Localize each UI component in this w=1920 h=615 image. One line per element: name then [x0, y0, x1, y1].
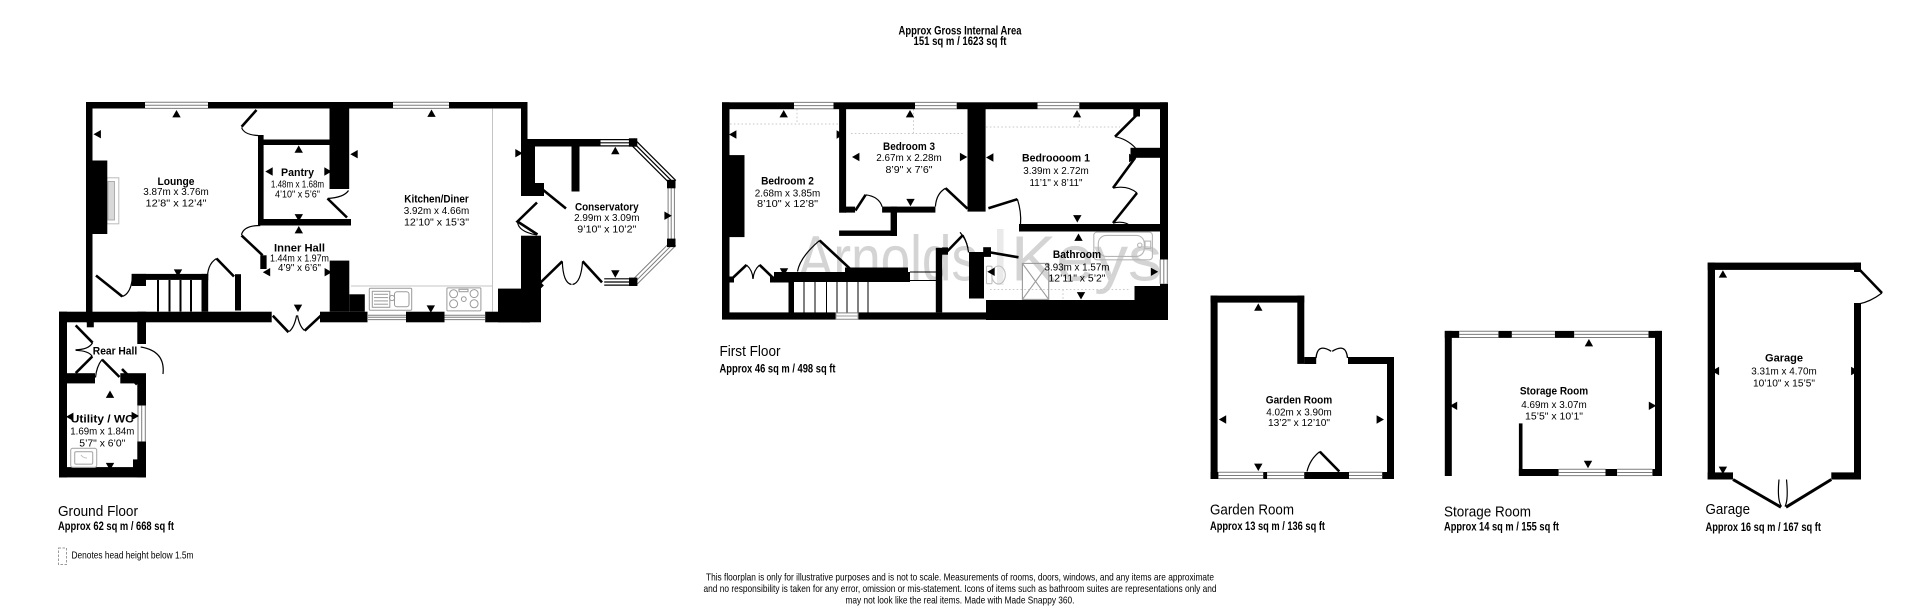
svg-text:10’10" x 15’5": 10’10" x 15’5" [1753, 379, 1815, 390]
svg-text:and no responsibility is taken: and no responsibility is taken for any e… [704, 583, 1217, 595]
svg-text:5’7" x 6’0": 5’7" x 6’0" [79, 439, 125, 450]
svg-text:12’10" x 15’3": 12’10" x 15’3" [404, 218, 469, 229]
svg-text:Denotes head height below 1.5m: Denotes head height below 1.5m [72, 550, 194, 562]
svg-text:may not look like the real ite: may not look like the real items. Made w… [846, 595, 1075, 607]
svg-text:1.69m x 1.84m: 1.69m x 1.84m [70, 427, 134, 438]
svg-text:8’10" x 12’8": 8’10" x 12’8" [757, 199, 818, 210]
svg-text:3.93m x 1.57m: 3.93m x 1.57m [1045, 262, 1110, 273]
svg-text:4.69m x 3.07m: 4.69m x 3.07m [1521, 400, 1586, 411]
svg-text:Bathroom: Bathroom [1053, 249, 1101, 261]
svg-text:Approx 16 sq m / 167 sq ft: Approx 16 sq m / 167 sq ft [1706, 522, 1822, 534]
svg-text:Approx 46 sq m / 498 sq ft: Approx 46 sq m / 498 sq ft [720, 364, 836, 376]
svg-text:Kitchen/Diner: Kitchen/Diner [404, 194, 469, 206]
svg-text:3.39m x 2.72m: 3.39m x 2.72m [1023, 166, 1088, 177]
svg-text:9’10" x 10’2": 9’10" x 10’2" [577, 225, 636, 236]
svg-text:151 sq m / 1623 sq ft: 151 sq m / 1623 sq ft [914, 36, 1007, 48]
svg-text:Lounge: Lounge [158, 176, 195, 188]
svg-text:11’1" x 8’11": 11’1" x 8’11" [1030, 178, 1083, 189]
svg-text:Conservatory: Conservatory [575, 201, 639, 213]
svg-text:This floorplan is only for ill: This floorplan is only for illustrative … [706, 572, 1214, 584]
svg-text:Storage Room: Storage Room [1520, 386, 1588, 398]
svg-text:2.67m x 2.28m: 2.67m x 2.28m [876, 153, 941, 164]
svg-text:Bedroom 3: Bedroom 3 [883, 141, 935, 153]
svg-text:12’11" x 5’2": 12’11" x 5’2" [1049, 273, 1106, 284]
svg-text:12’8" x 12’4": 12’8" x 12’4" [146, 199, 207, 210]
svg-text:4.02m x 3.90m: 4.02m x 3.90m [1266, 407, 1331, 418]
svg-text:2.99m x 3.09m: 2.99m x 3.09m [574, 213, 639, 224]
svg-text:Garden Room: Garden Room [1210, 502, 1294, 519]
svg-text:4’9" x 6’6": 4’9" x 6’6" [278, 263, 321, 274]
svg-text:Storage Room: Storage Room [1444, 504, 1531, 521]
svg-text:First Floor: First Floor [720, 343, 781, 360]
svg-text:Approx 14 sq m / 155 sq ft: Approx 14 sq m / 155 sq ft [1444, 522, 1559, 534]
svg-text:Rear Hall: Rear Hall [93, 345, 137, 357]
svg-text:3.31m x 4.70m: 3.31m x 4.70m [1751, 366, 1816, 377]
svg-text:Approx 62 sq m / 668 sq ft: Approx 62 sq m / 668 sq ft [58, 521, 174, 533]
svg-text:3.87m x 3.76m: 3.87m x 3.76m [143, 187, 208, 198]
svg-text:Ground Floor: Ground Floor [58, 503, 138, 520]
svg-text:Pantry: Pantry [281, 167, 315, 179]
svg-text:2.68m x 3.85m: 2.68m x 3.85m [755, 188, 820, 199]
svg-text:15’5" x 10’1": 15’5" x 10’1" [1525, 412, 1583, 423]
svg-text:Approx 13 sq m / 136 sq ft: Approx 13 sq m / 136 sq ft [1210, 521, 1325, 533]
svg-text:13’2" x 12’10": 13’2" x 12’10" [1268, 418, 1330, 429]
svg-text:Garden Room: Garden Room [1266, 395, 1333, 407]
svg-text:4’10" x 5’6": 4’10" x 5’6" [275, 190, 320, 201]
svg-text:8’9" x 7’6": 8’9" x 7’6" [886, 165, 933, 176]
svg-text:Bedroooom 1: Bedroooom 1 [1022, 153, 1090, 165]
svg-text:Utility / WC: Utility / WC [71, 414, 134, 426]
svg-text:Garage: Garage [1706, 501, 1751, 518]
svg-text:Garage: Garage [1765, 353, 1803, 365]
svg-text:3.92m x 4.66m: 3.92m x 4.66m [404, 206, 469, 217]
svg-text:Bedroom 2: Bedroom 2 [761, 176, 814, 188]
